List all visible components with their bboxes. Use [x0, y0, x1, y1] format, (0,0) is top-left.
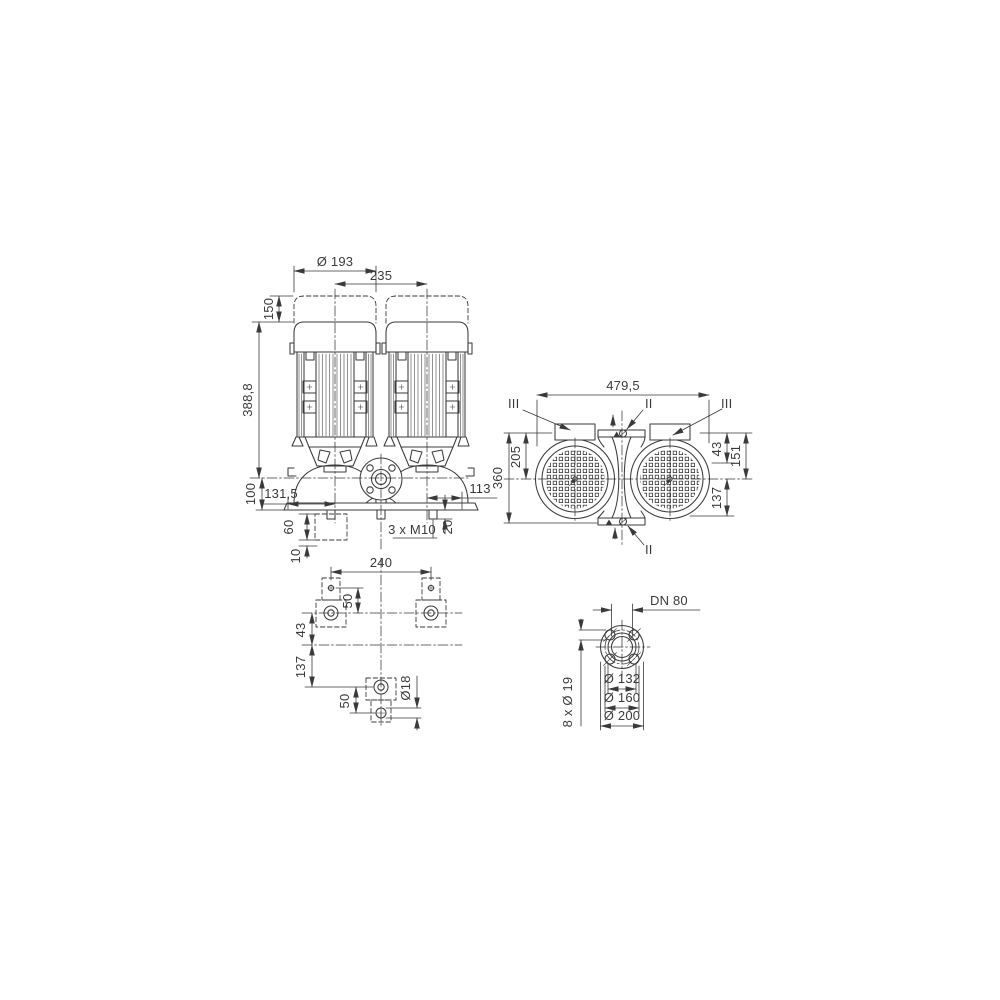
dim-label-foundation-height: 60 [281, 520, 296, 535]
dim-label-grout-thickness: 10 [288, 549, 303, 564]
top-view-dimensions: 479,5 360 205 43 151 137 [490, 378, 752, 523]
anchor-pad-top-right [416, 578, 446, 627]
dim-label-bolt-circle: Ø 160 [604, 690, 640, 705]
dim-label-axis-to-base: 100 [243, 483, 258, 505]
dim-label-axis-to-front: 205 [508, 446, 523, 468]
dim-label-bolt-holes: 8 x Ø 19 [560, 677, 575, 728]
dim-label-outer-diameter: Ø 200 [604, 708, 640, 723]
dim-label-stud-thread: 3 x M10 [388, 522, 436, 537]
section-label-ii-bottom: II [645, 542, 653, 557]
dim-label-motor-spacing: 235 [370, 268, 392, 283]
dim-label-height-to-axis: 388,8 [240, 383, 255, 417]
dim-label-offset-left: 131,5 [264, 486, 298, 501]
dim-label-raised-face: Ø 132 [604, 671, 640, 686]
foundation-dimensions: 240 50 43 137 50 Ø18 [293, 555, 431, 730]
dim-label-bolt-span: 240 [370, 555, 392, 570]
centerlines-foundation [302, 558, 462, 728]
dim-label-row-spacing: 43 [293, 623, 308, 638]
section-label-ii-top: II [645, 396, 653, 411]
dim-label-flange-offset: 43 [709, 442, 724, 457]
dim-label-nominal-diameter: DN 80 [650, 593, 688, 608]
centerlines-front [250, 289, 468, 551]
front-view: Ø 193 235 150 388,8 100 131,5 60 10 113 [240, 254, 497, 563]
dim-label-stud-protrusion: 20 [440, 520, 455, 535]
dim-label-dismantling-clearance: 150 [261, 298, 276, 320]
flange-detail: DN 80 8 x Ø 19 Ø 132 Ø 160 Ø 200 [560, 593, 700, 730]
centerlines-flange [596, 620, 650, 676]
dim-label-overall-width: 479,5 [606, 378, 640, 393]
dim-label-row-to-bolt: 137 [293, 656, 308, 678]
dim-label-hole-pitch-top: 50 [340, 594, 355, 609]
section-label-iii-right: III [721, 396, 732, 411]
dim-label-motor-diameter: Ø 193 [317, 254, 353, 269]
foundation-plan: 240 50 43 137 50 Ø18 [293, 555, 462, 730]
dim-label-hole-diameter: Ø18 [398, 675, 413, 700]
top-view: 479,5 360 205 43 151 137 III II III II [490, 378, 753, 557]
dim-label-axis-to-back: 137 [709, 487, 724, 509]
dim-label-overall-depth: 360 [490, 467, 505, 489]
dim-label-hole-pitch-bottom: 50 [337, 694, 352, 709]
foundation-block [315, 514, 347, 540]
section-label-iii-left: III [508, 396, 519, 411]
pump-dimensional-drawing: Ø 193 235 150 388,8 100 131,5 60 10 113 [0, 0, 1000, 1000]
drawing-canvas: Ø 193 235 150 388,8 100 131,5 60 10 113 [0, 0, 1000, 1000]
terminal-box-right [650, 424, 690, 440]
dim-label-offset-right: 113 [469, 481, 490, 496]
dim-label-axis-to-back-edge: 151 [728, 445, 743, 467]
